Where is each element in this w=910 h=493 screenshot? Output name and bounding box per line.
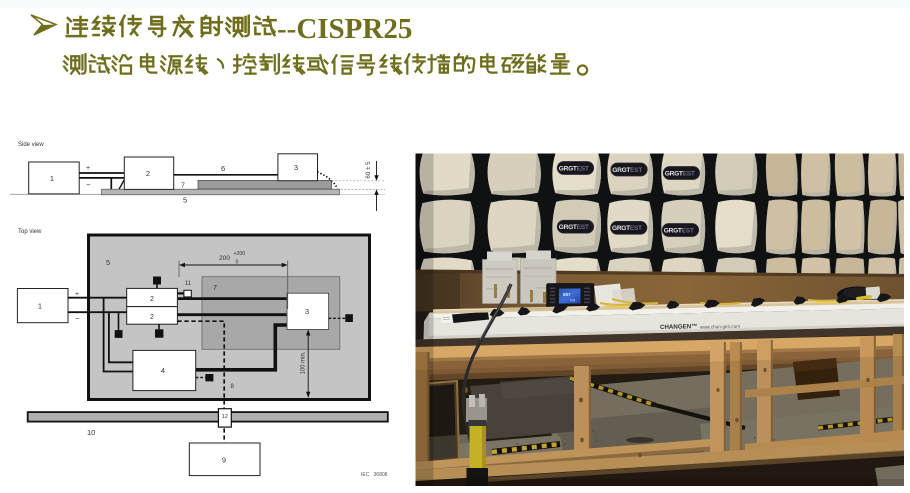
svg-text:6: 6 bbox=[221, 164, 225, 173]
svg-text:GRGTEST: GRGTEST bbox=[559, 224, 589, 231]
svg-text:3: 3 bbox=[305, 307, 309, 316]
svg-text:4: 4 bbox=[161, 366, 165, 375]
svg-text:3: 3 bbox=[294, 163, 298, 172]
svg-text:2: 2 bbox=[150, 296, 154, 303]
svg-text:+: + bbox=[86, 165, 90, 172]
svg-text:200: 200 bbox=[219, 255, 230, 262]
svg-text:GRGTEST: GRGTEST bbox=[559, 165, 589, 172]
svg-text:--CISPR25: --CISPR25 bbox=[277, 13, 412, 45]
svg-text:GRGTEST: GRGTEST bbox=[665, 170, 695, 177]
svg-text:5: 5 bbox=[183, 196, 187, 205]
svg-text:Top view: Top view bbox=[18, 229, 42, 235]
svg-text:1: 1 bbox=[50, 174, 54, 183]
svg-text:www.chan-gen.com: www.chan-gen.com bbox=[700, 324, 740, 330]
svg-text:FM: FM bbox=[570, 299, 575, 303]
svg-text:CHANGEN™: CHANGEN™ bbox=[660, 323, 698, 331]
svg-text:60 ± 5: 60 ± 5 bbox=[365, 161, 372, 179]
svg-text:IEC 36808: IEC 36808 bbox=[361, 472, 388, 478]
svg-text:GRGTEST: GRGTEST bbox=[612, 167, 642, 174]
svg-text:1: 1 bbox=[38, 302, 42, 311]
svg-text:Side view: Side view bbox=[18, 142, 44, 148]
svg-text:7: 7 bbox=[181, 183, 185, 190]
svg-text:100 min.: 100 min. bbox=[301, 351, 307, 374]
svg-text:10: 10 bbox=[87, 428, 95, 437]
svg-text:−: − bbox=[75, 314, 80, 323]
svg-text:7: 7 bbox=[213, 285, 217, 292]
svg-text:+200: +200 bbox=[234, 251, 246, 257]
svg-text:5: 5 bbox=[106, 258, 110, 267]
svg-text:2: 2 bbox=[150, 314, 154, 321]
svg-text:887: 887 bbox=[563, 292, 571, 297]
svg-text:11: 11 bbox=[185, 281, 192, 287]
svg-text:12: 12 bbox=[222, 414, 228, 420]
svg-text:−: − bbox=[86, 181, 91, 190]
svg-text:GRGTEST: GRGTEST bbox=[612, 225, 642, 232]
svg-text:0: 0 bbox=[236, 260, 239, 266]
svg-text:GRGTEST: GRGTEST bbox=[664, 227, 694, 234]
svg-text:2: 2 bbox=[146, 169, 150, 178]
svg-text:9: 9 bbox=[222, 456, 226, 465]
